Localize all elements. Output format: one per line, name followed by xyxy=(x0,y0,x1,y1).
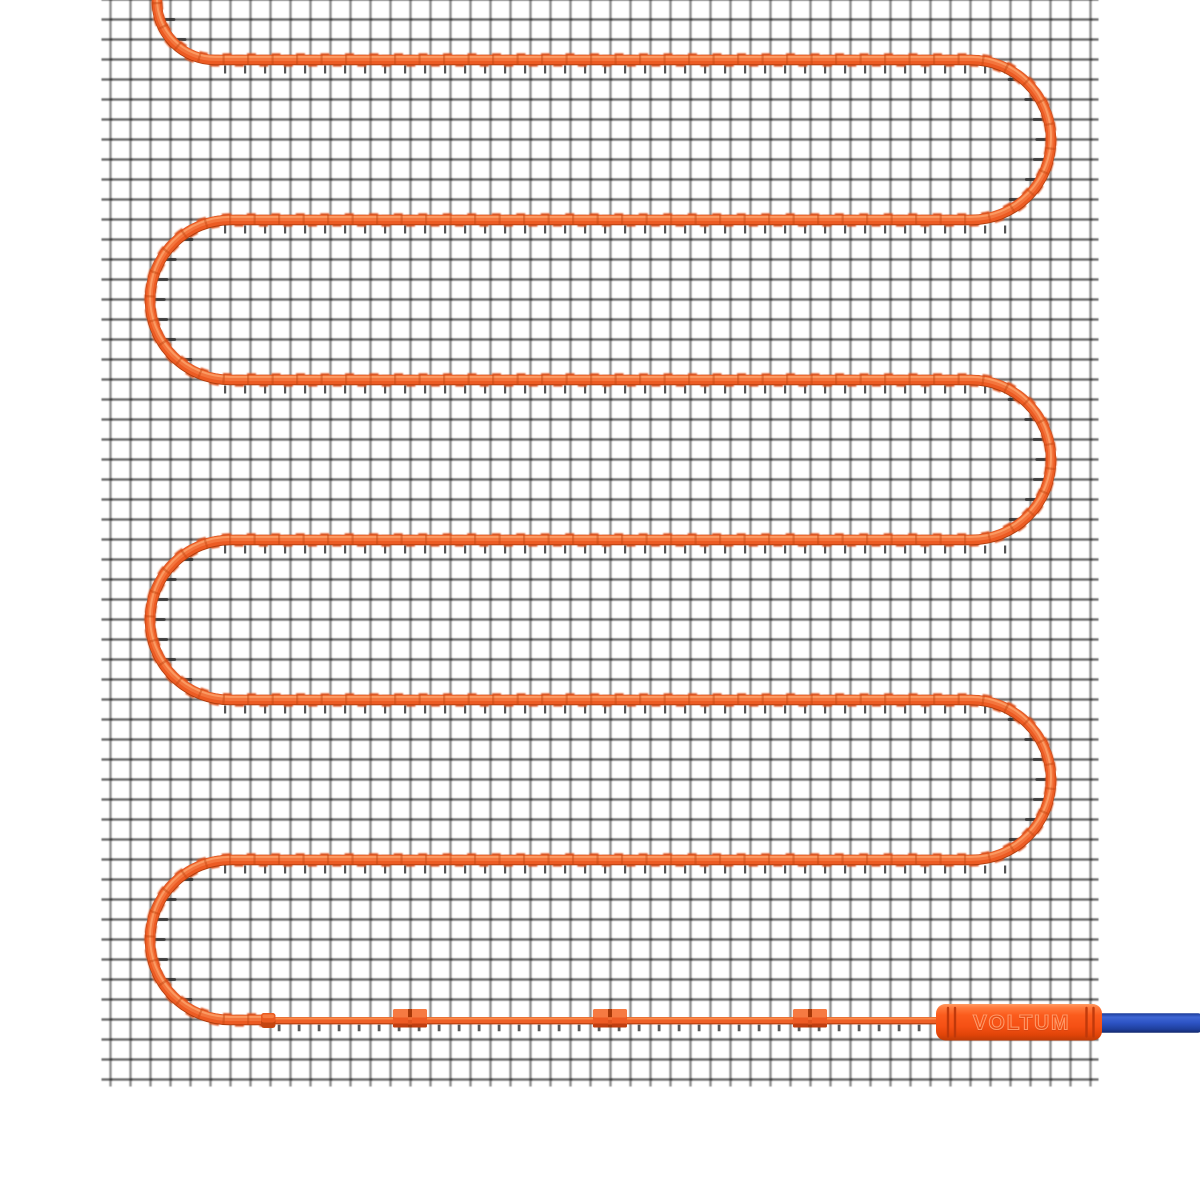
svg-text:VOLTUM: VOLTUM xyxy=(973,1011,1070,1034)
